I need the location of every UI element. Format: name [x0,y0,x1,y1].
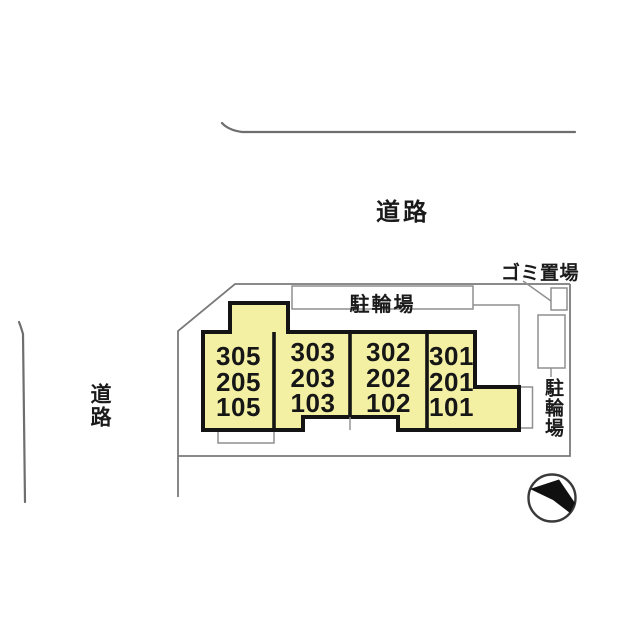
unit-number: 302 [352,340,425,366]
unit-number: 303 [278,340,348,366]
bicycle-parking-label-top: 駐輪場 [292,288,473,310]
road-label-top: 道路 [370,192,436,227]
entrance-porch-right [519,387,533,428]
unit-number: 305 [205,344,272,370]
unit-column-303: 303 203 103 [278,340,348,417]
garbage-area-label: ゴミ置場 [499,258,581,285]
unit-number: 101 [429,395,474,421]
road-line-left [19,322,25,502]
unit-number: 105 [205,395,272,421]
road-line-top [222,123,575,132]
site-plan-canvas [0,0,636,640]
bicycle-parking-label-right: 駐輪場 [539,378,566,438]
unit-column-302: 302 202 102 [352,340,425,417]
approach-outline [473,305,519,387]
unit-column-301: 301 201 101 [429,344,474,421]
garbage-area-box [551,288,567,310]
bicycle-parking-right-box [538,315,565,368]
unit-number: 301 [429,344,474,370]
site-plan: 道路 道路 ゴミ置場 駐輪場 駐輪場 305 205 105 303 203 1… [0,0,636,640]
unit-column-305: 305 205 105 [205,344,272,421]
road-label-left: 道路 [84,383,114,429]
unit-number: 102 [352,391,425,417]
unit-number: 103 [278,391,348,417]
north-arrow-icon [529,475,576,522]
